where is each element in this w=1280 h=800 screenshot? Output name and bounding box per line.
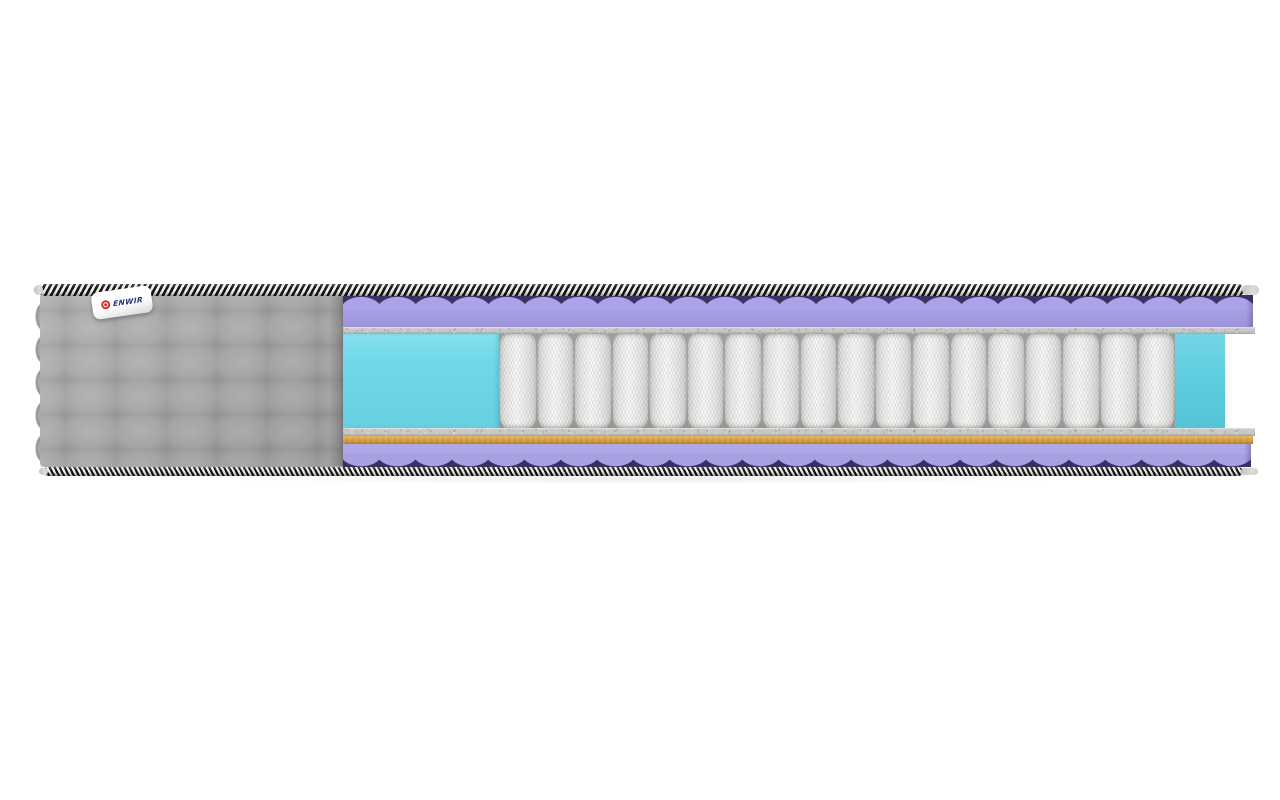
spring-coil xyxy=(763,334,799,428)
spring-coil xyxy=(1026,334,1062,428)
spring-coil xyxy=(801,334,837,428)
felt-pad-top xyxy=(343,327,1255,334)
spring-coil xyxy=(838,334,874,428)
wave-foam-top xyxy=(343,295,1253,328)
spring-coil xyxy=(1139,334,1175,428)
edge-piping-top xyxy=(38,284,1244,296)
spring-coil xyxy=(951,334,987,428)
foam-block-right xyxy=(1175,334,1225,428)
spring-coil xyxy=(1101,334,1137,428)
spring-coil xyxy=(575,334,611,428)
felt-pad-bottom xyxy=(343,428,1255,436)
edge-piping-bottom xyxy=(43,467,1243,476)
wave-foam-bottom xyxy=(343,444,1251,467)
spring-coil xyxy=(913,334,949,428)
brand-label-text: ENWIR xyxy=(113,295,143,308)
spring-coil xyxy=(650,334,686,428)
spring-coil xyxy=(988,334,1024,428)
spring-coil xyxy=(688,334,724,428)
foam-block-left xyxy=(343,334,499,428)
spring-coil xyxy=(725,334,761,428)
spring-coil xyxy=(500,334,536,428)
mattress-core xyxy=(343,334,1225,428)
quilted-cover xyxy=(40,294,343,467)
pocket-springs xyxy=(499,334,1175,428)
brand-logo-red-ring-icon xyxy=(100,300,110,310)
coir-layer xyxy=(343,436,1253,444)
spring-coil xyxy=(613,334,649,428)
spring-coil xyxy=(538,334,574,428)
quilt-cut-edge-shadow xyxy=(329,295,343,466)
spring-coil xyxy=(876,334,912,428)
spring-coil xyxy=(1063,334,1099,428)
